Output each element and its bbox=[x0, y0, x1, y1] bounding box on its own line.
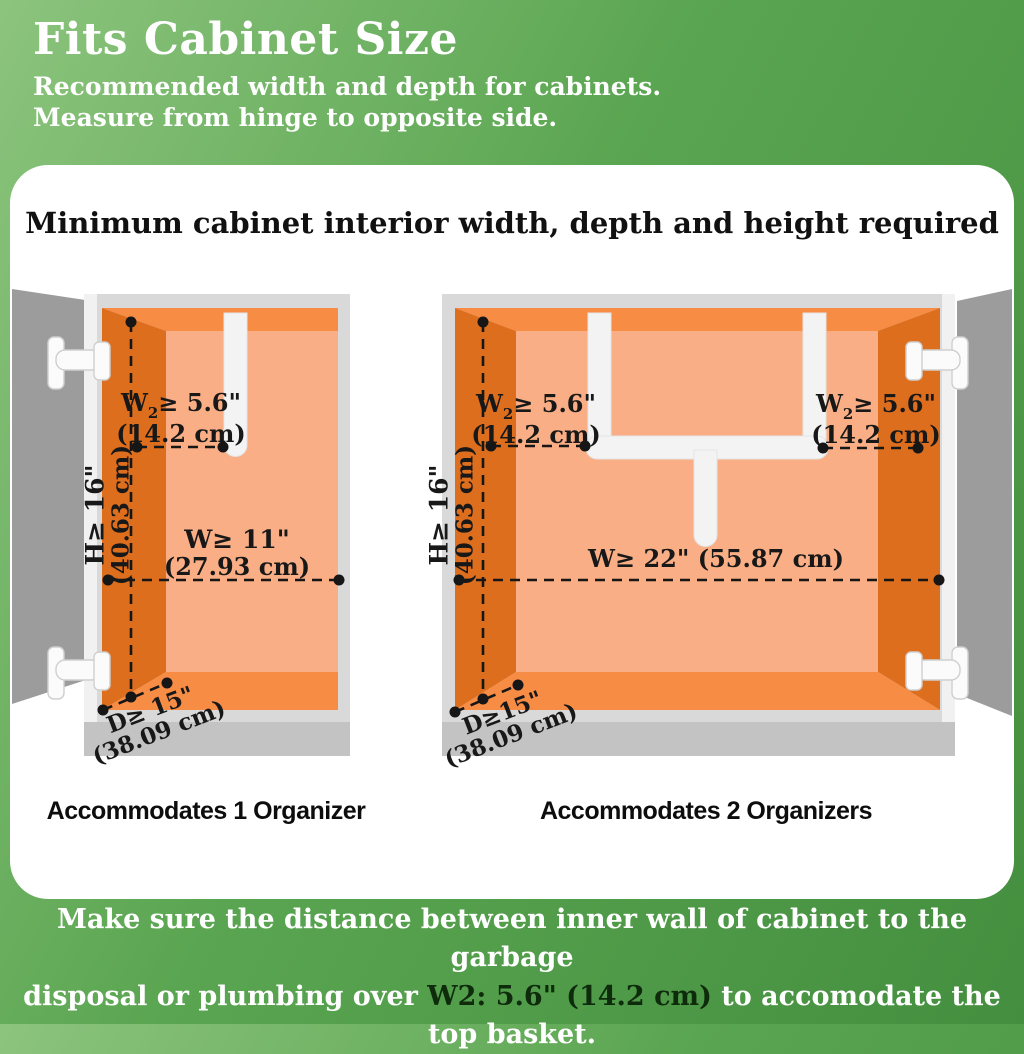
left-width-label: W≥ 11" (27.93 cm) bbox=[137, 527, 337, 579]
right-w2-left-label: W2≥ 5.6" (14.2 cm) bbox=[466, 391, 606, 447]
infographic-page: { "header": { "title": "Fits Cabinet Siz… bbox=[0, 0, 1024, 1024]
left-height-value: H≥ 16" bbox=[83, 425, 110, 605]
right-height-value: H≥ 16" bbox=[427, 425, 454, 605]
right-height-metric: (40.63 cm) bbox=[453, 425, 477, 605]
footer-note-line-2: disposal or plumbing over W2: 5.6" (14.2… bbox=[0, 978, 1024, 1054]
left-cabinet-caption: Accommodates 1 Organizer bbox=[26, 797, 386, 826]
card-title: Minimum cabinet interior width, depth an… bbox=[0, 206, 1024, 240]
right-w2-right-metric: (14.2 cm) bbox=[806, 422, 946, 447]
left-width-metric: (27.93 cm) bbox=[137, 554, 337, 579]
right-w2-left-metric: (14.2 cm) bbox=[466, 422, 606, 447]
right-w2-right-label: W2≥ 5.6" (14.2 cm) bbox=[806, 391, 946, 447]
right-w2-left-value: W2≥ 5.6" bbox=[466, 391, 606, 422]
footer-note: Make sure the distance between inner wal… bbox=[0, 901, 1024, 1054]
left-height-metric: (40.63 cm) bbox=[109, 425, 133, 605]
left-height-label: H≥ 16" (40.63 cm) bbox=[83, 425, 134, 605]
right-w2-right-value: W2≥ 5.6" bbox=[806, 391, 946, 422]
right-height-label: H≥ 16" (40.63 cm) bbox=[427, 425, 478, 605]
right-width-label: W≥ 22" (55.87 cm) bbox=[566, 546, 866, 571]
footer-note-line-1: Make sure the distance between inner wal… bbox=[0, 901, 1024, 978]
left-w2-value: W2≥ 5.6" bbox=[111, 390, 251, 421]
page-subtitle: Recommended width and depth for cabinets… bbox=[33, 72, 661, 133]
subtitle-line-1: Recommended width and depth for cabinets… bbox=[33, 72, 661, 103]
subtitle-line-2: Measure from hinge to opposite side. bbox=[33, 103, 661, 134]
right-cabinet-caption: Accommodates 2 Organizers bbox=[526, 797, 886, 826]
footer-note-highlight: W2: 5.6" (14.2 cm) bbox=[427, 981, 712, 1012]
page-title: Fits Cabinet Size bbox=[33, 14, 458, 65]
right-width-value: W≥ 22" (55.87 cm) bbox=[566, 546, 866, 571]
left-width-value: W≥ 11" bbox=[137, 527, 337, 554]
